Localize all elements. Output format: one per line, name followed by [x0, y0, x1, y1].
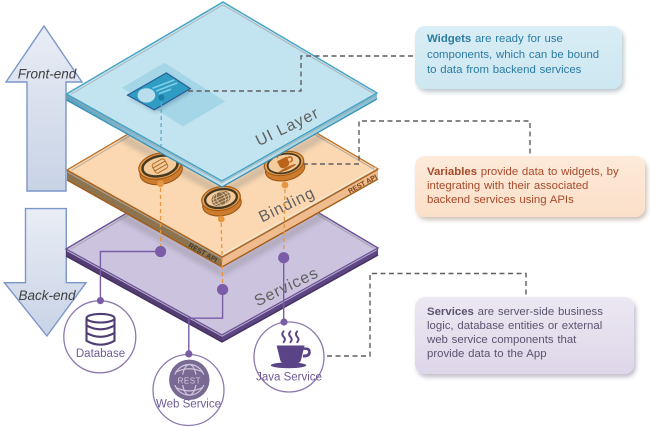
svg-text:REST: REST — [178, 376, 201, 385]
svg-text:Database: Database — [76, 348, 125, 360]
svg-text:Java Service: Java Service — [256, 372, 322, 384]
svg-text:Back-end: Back-end — [18, 288, 76, 303]
svg-text:Web Service: Web Service — [156, 399, 221, 411]
svg-text:Front-end: Front-end — [18, 67, 77, 82]
